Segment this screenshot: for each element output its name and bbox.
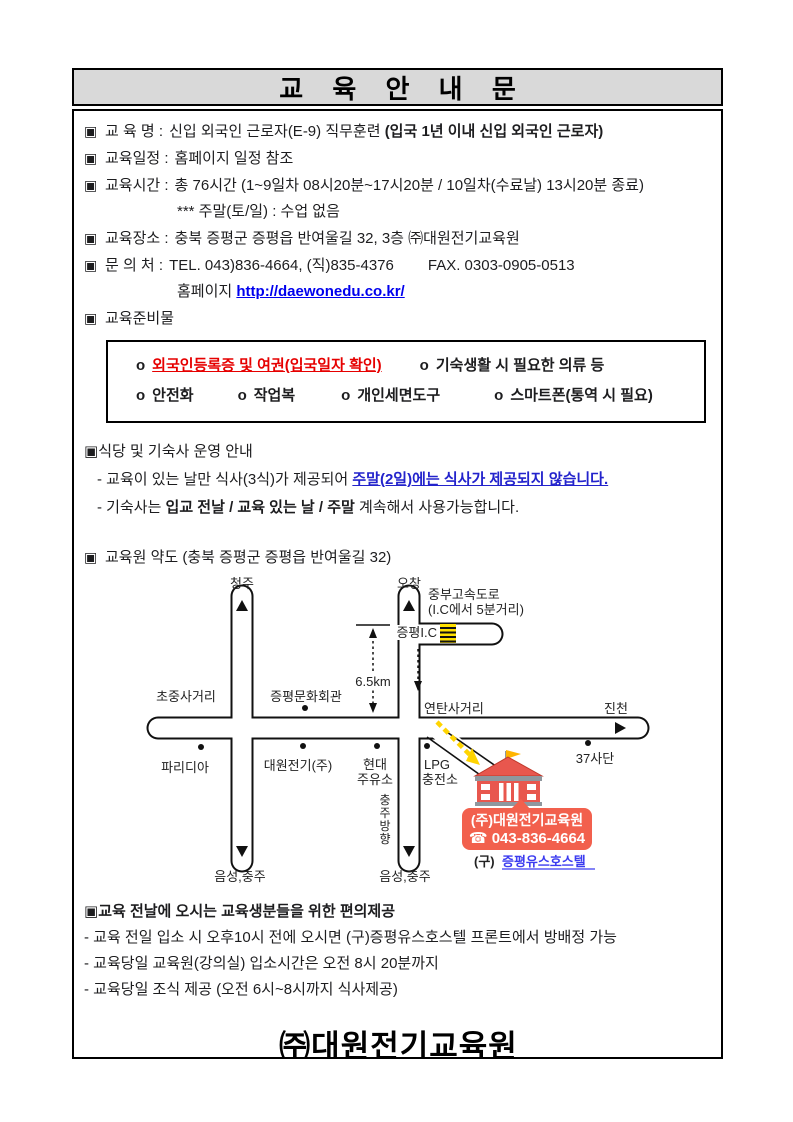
contact-line: ▣문 의 처 :TEL. 043)836-4664, (직)835-4376FA… — [84, 252, 713, 279]
former-name-prefix: (구) — [474, 854, 495, 869]
circle-marker: o — [494, 387, 503, 404]
chojung-crossing-label: 초중사거리 — [156, 689, 216, 704]
contact-label: 문 의 처 : — [105, 257, 163, 274]
dining-dorm-days: 입교 전날 / 교육 있는 날 / 주말 — [166, 499, 355, 516]
distance-arrow-down — [369, 703, 377, 713]
schedule-line: ▣교육일정 :홈페이지 일정 참조 — [84, 145, 713, 172]
place-value: 충북 증평군 증평읍 반여울길 32, 3층 ㈜대원전기교육원 — [175, 230, 520, 247]
convenience-section: ▣교육 전날에 오시는 교육생분들을 위한 편의제공 - 교육 전일 입소 시 … — [84, 899, 713, 1003]
notice-sheet: 교 육 안 내 문 ▣교 육 명 :신입 외국인 근로자(E-9) 직무훈련 (… — [72, 68, 723, 1059]
hours-note: *** 주말(토/일) : 수업 없음 — [177, 203, 340, 220]
circle-marker: o — [238, 387, 247, 404]
materials-clothes: 기숙생활 시 필요한 의류 등 — [436, 357, 604, 374]
square-bullet-icon: ▣ — [84, 145, 100, 171]
daewon-elec-label: 대원전기(주) — [264, 758, 332, 773]
yeontan-crossing-label: 연탄사거리 — [424, 701, 484, 716]
dining-heading: 식당 및 기숙사 운영 안내 — [98, 443, 253, 460]
materials-passport: 외국인등록증 및 여권(입국일자 확인) — [152, 357, 382, 374]
materials-clothes-item: o기숙생활 시 필요한 의류 등 — [420, 357, 605, 374]
ic-label: 증평I.C — [396, 625, 437, 640]
document-title: 교 육 안 내 문 — [72, 68, 723, 106]
dining-dorm-post: 계속해서 사용가능합니다. — [355, 499, 519, 516]
convenience-heading: 교육 전날에 오시는 교육생분들을 위한 편의제공 — [98, 903, 395, 920]
paridia-dot — [198, 744, 204, 750]
lpg-label-1: LPG — [424, 757, 450, 772]
homepage-line: 홈페이지 http://daewonedu.co.kr/ — [84, 279, 713, 305]
highway-label-2: (I.C에서 5분거리) — [428, 602, 524, 617]
distance-arrow-up — [369, 628, 377, 638]
materials-heading: 교육준비물 — [105, 310, 174, 327]
dining-dorm-line: - 기숙사는 입교 전날 / 교육 있는 날 / 주말 계속해서 사용가능합니다… — [84, 494, 713, 522]
map-heading-line: ▣교육원 약도 (충북 증평군 증평읍 반여울길 32) — [84, 544, 713, 571]
materials-safety-shoes: 안전화 — [152, 387, 193, 404]
homepage-link[interactable]: http://daewonedu.co.kr/ — [236, 283, 404, 300]
distance-label: 6.5km — [355, 674, 390, 689]
course-name-value: 신입 외국인 근로자(E-9) 직무훈련 — [169, 123, 385, 140]
dining-meal-warning: 주말(2일)에는 식사가 제공되지 않습니다. — [352, 471, 608, 488]
former-name-label: 증평유스호스텔 — [502, 854, 586, 869]
eumseong-right-label: 음성,충주 — [379, 869, 430, 884]
square-bullet-icon: ▣ — [84, 225, 100, 251]
daewon-elec-dot — [300, 743, 306, 749]
division37-label: 37사단 — [576, 751, 614, 766]
ochang-label: 오창 — [397, 576, 421, 591]
materials-smartphone: 스마트폰(통역 시 필요) — [510, 387, 653, 404]
materials-work-clothes: 작업복 — [254, 387, 295, 404]
chungju-direction-label: 충주방향 — [379, 793, 390, 846]
materials-toiletries: 개인세면도구 — [357, 387, 440, 404]
materials-box: o외국인등록증 및 여권(입국일자 확인)o기숙생활 시 필요한 의류 등 o안… — [106, 340, 706, 423]
schedule-label: 교육일정 : — [105, 150, 169, 167]
convenience-line-3: - 교육당일 조식 제공 (오전 6시~8시까지 식사제공) — [84, 977, 713, 1003]
contact-tel: TEL. 043)836-4664, (직)835-4376 — [169, 257, 394, 274]
square-bullet-icon: ▣ — [84, 544, 100, 570]
materials-row-2: o안전화o작업복o개인세면도구o스마트폰(통역 시 필요) — [136, 381, 698, 411]
course-name-label: 교 육 명 : — [105, 123, 163, 140]
convenience-line-1: - 교육 전일 입소 시 오후10시 전에 오시면 (구)증평유스호스텔 프론트… — [84, 925, 713, 951]
eumseong-left-label: 음성,충주 — [214, 869, 265, 884]
cheongju-label: 청주 — [230, 576, 254, 591]
circle-marker: o — [341, 387, 350, 404]
lpg-label-2: 충전소 — [422, 772, 458, 787]
convenience-line-2: - 교육당일 교육원(강의실) 입소시간은 오전 8시 20분까지 — [84, 951, 713, 977]
hyundai-label-1: 현대 — [363, 757, 387, 772]
hours-value: 총 76시간 (1~9일차 08시20분~17시20분 / 10일차(수료날) … — [175, 177, 644, 194]
convenience-heading-line: ▣교육 전날에 오시는 교육생분들을 위한 편의제공 — [84, 899, 713, 925]
square-bullet-icon: ▣ — [84, 903, 98, 920]
center-tel-label: ☎ 043-836-4664 — [469, 830, 586, 847]
dining-meal-pre: - 교육이 있는 날만 식사(3식)가 제공되어 — [97, 471, 352, 488]
dining-heading-line: ▣식당 및 기숙사 운영 안내 — [84, 438, 713, 466]
dining-meal-line: - 교육이 있는 날만 식사(3식)가 제공되어 주말(2일)에는 식사가 제공… — [84, 466, 713, 494]
square-bullet-icon: ▣ — [84, 118, 100, 144]
schedule-value: 홈페이지 일정 참조 — [175, 150, 294, 167]
division37-dot — [585, 740, 591, 746]
materials-smartphone-item: o스마트폰(통역 시 필요) — [494, 387, 653, 404]
hyundai-label-2: 주유소 — [357, 772, 393, 787]
circle-marker: o — [136, 387, 145, 404]
materials-toiletries-item: o개인세면도구 — [341, 387, 440, 404]
culture-hall-label: 증평문화회관 — [270, 689, 342, 704]
highway-label-1: 중부고속도로 — [428, 587, 500, 602]
square-bullet-icon: ▣ — [84, 252, 100, 278]
place-label: 교육장소 : — [105, 230, 169, 247]
homepage-label: 홈페이지 — [177, 283, 236, 300]
circle-marker: o — [136, 357, 145, 374]
center-name-label: (주)대원전기교육원 — [471, 812, 583, 828]
materials-heading-line: ▣교육준비물 — [84, 305, 713, 332]
circle-marker: o — [420, 357, 429, 374]
culture-hall-dot — [302, 705, 308, 711]
course-name-note: (입국 1년 이내 신입 외국인 근로자) — [385, 123, 604, 140]
jincheon-label: 진천 — [604, 701, 628, 716]
square-bullet-icon: ▣ — [84, 172, 100, 198]
place-line: ▣교육장소 :충북 증평군 증평읍 반여울길 32, 3층 ㈜대원전기교육원 — [84, 225, 713, 252]
square-bullet-icon: ▣ — [84, 305, 100, 331]
course-name-line: ▣교 육 명 :신입 외국인 근로자(E-9) 직무훈련 (입국 1년 이내 신… — [84, 118, 713, 145]
map-heading: 교육원 약도 (충북 증평군 증평읍 반여울길 32) — [105, 549, 391, 566]
notice-body: ▣교 육 명 :신입 외국인 근로자(E-9) 직무훈련 (입국 1년 이내 신… — [72, 109, 723, 1059]
contact-fax: FAX. 0303-0905-0513 — [428, 257, 575, 274]
hours-note-line: *** 주말(토/일) : 수업 없음 — [84, 199, 713, 225]
company-logo: ㈜대원전기교육원 — [84, 1021, 713, 1059]
campus-map: 6.5km 증평I.C 청주 오창 중부고속도로 (I.C에서 — [140, 573, 700, 893]
paridia-label: 파리디아 — [161, 760, 209, 775]
lpg-dot — [424, 743, 430, 749]
dining-dorm-pre: - 기숙사는 — [97, 499, 166, 516]
hours-label: 교육시간 : — [105, 177, 169, 194]
materials-row-1: o외국인등록증 및 여권(입국일자 확인)o기숙생활 시 필요한 의류 등 — [136, 351, 698, 381]
materials-work-clothes-item: o작업복 — [238, 387, 296, 404]
map-container: 6.5km 증평I.C 청주 오창 중부고속도로 (I.C에서 — [84, 571, 713, 893]
square-bullet-icon: ▣ — [84, 443, 98, 460]
hyundai-dot — [374, 743, 380, 749]
hours-line: ▣교육시간 :총 76시간 (1~9일차 08시20분~17시20분 / 10일… — [84, 172, 713, 199]
dining-section: ▣식당 및 기숙사 운영 안내 - 교육이 있는 날만 식사(3식)가 제공되어… — [84, 438, 713, 522]
